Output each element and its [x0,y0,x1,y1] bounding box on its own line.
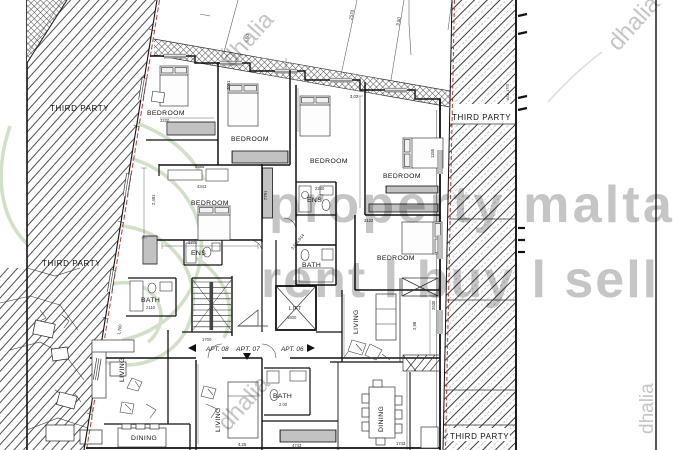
svg-text:BEDROOM: BEDROOM [191,200,229,207]
svg-text:3001: 3001 [226,80,231,90]
svg-text:4743: 4743 [292,443,302,448]
svg-text:3,02: 3,02 [350,94,359,99]
svg-text:1600: 1600 [287,315,297,320]
svg-text:2110: 2110 [146,305,156,310]
svg-text:3220: 3220 [160,118,170,123]
svg-text:property malta: property malta [269,176,675,234]
svg-text:2791: 2791 [263,190,268,200]
svg-text:BEDROOM: BEDROOM [310,158,348,165]
svg-text:APT. 07: APT. 07 [235,346,260,353]
svg-text:BEDROOM: BEDROOM [147,110,185,117]
svg-text:ENS: ENS [191,250,206,257]
svg-text:2,98: 2,98 [412,321,417,330]
svg-text:2.00: 2.00 [279,402,288,407]
svg-text:1700: 1700 [202,337,212,342]
svg-text:THIRD PARTY: THIRD PARTY [42,259,101,268]
svg-text:1743: 1743 [396,441,406,446]
svg-text:dhalia: dhalia [637,383,658,434]
svg-text:rent l buy l sell: rent l buy l sell [261,251,659,309]
svg-text:2770: 2770 [188,240,198,245]
svg-text:1155: 1155 [430,148,435,158]
svg-text:APT. 08: APT. 08 [205,346,229,353]
svg-text:THIRD PARTY: THIRD PARTY [50,104,109,113]
svg-text:LIVING: LIVING [119,357,126,382]
svg-text:4,25: 4,25 [238,442,247,447]
svg-text:BATH: BATH [141,297,160,304]
svg-text:DINING: DINING [378,406,385,432]
svg-text:2,491: 2,491 [151,194,156,205]
svg-text:APT. 06: APT. 06 [280,346,304,353]
svg-text:THIRD PARTY: THIRD PARTY [450,432,509,441]
svg-text:BEDROOM: BEDROOM [231,136,269,143]
svg-text:LIVING: LIVING [353,309,360,334]
svg-text:THIRD PARTY: THIRD PARTY [452,113,511,122]
svg-text:DINING: DINING [131,435,157,442]
svg-text:ASB 1775: ASB 1775 [506,84,510,100]
svg-text:4565: 4565 [195,164,205,169]
svg-text:4343: 4343 [197,184,207,189]
svg-text:BATH: BATH [273,393,292,400]
